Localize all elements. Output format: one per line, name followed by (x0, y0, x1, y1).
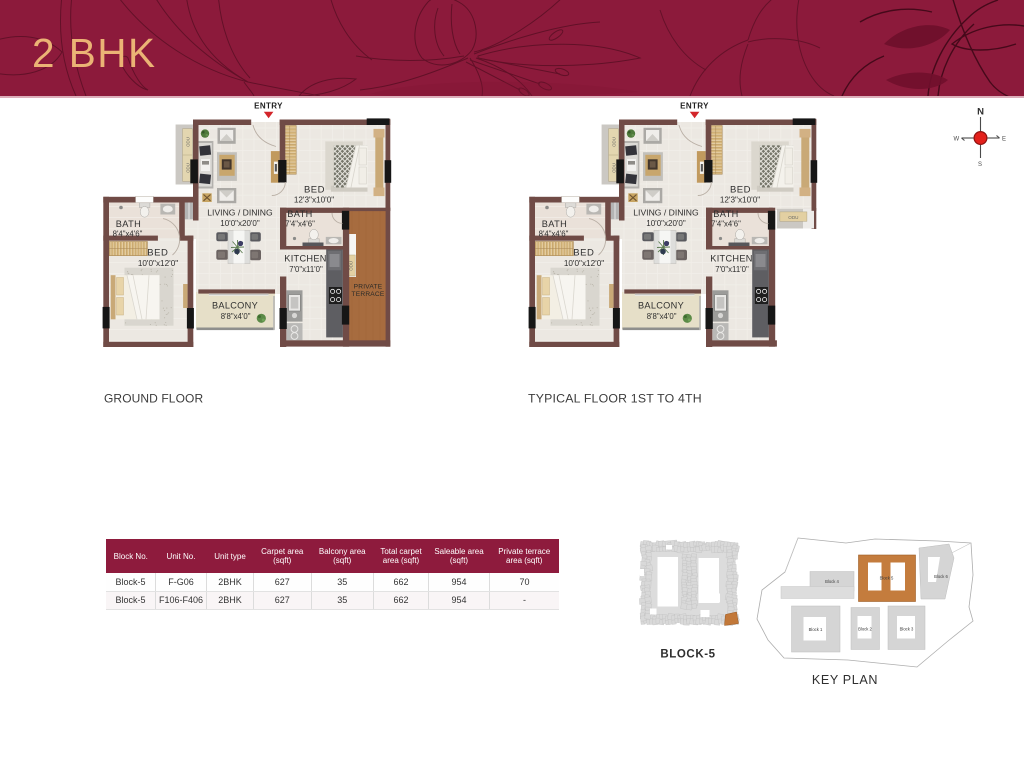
svg-text:BED: BED (573, 247, 594, 258)
svg-text:10'0"x12'0": 10'0"x12'0" (564, 259, 604, 268)
svg-text:S: S (978, 162, 982, 168)
svg-text:BED: BED (730, 184, 751, 195)
svg-text:LIVING / DINING: LIVING / DINING (207, 208, 273, 218)
svg-text:8'8"x4'0": 8'8"x4'0" (647, 312, 677, 321)
svg-text:ODU: ODU (186, 137, 191, 147)
svg-text:TERRACE: TERRACE (352, 291, 385, 298)
svg-text:E: E (1002, 137, 1006, 143)
svg-text:TYPICAL FLOOR 1ST TO 4TH: TYPICAL FLOOR 1ST TO 4TH (528, 392, 702, 406)
svg-text:KITCHEN: KITCHEN (710, 253, 752, 263)
svg-text:Block 2: Block 2 (858, 627, 872, 632)
svg-text:Block 4: Block 4 (825, 579, 839, 584)
svg-text:Block 5: Block 5 (880, 576, 894, 581)
svg-text:ODU: ODU (186, 163, 191, 173)
svg-text:BALCONY: BALCONY (638, 301, 684, 311)
svg-text:ENTRY: ENTRY (680, 102, 709, 111)
svg-text:BED: BED (147, 247, 168, 258)
svg-text:ODU: ODU (612, 137, 617, 147)
svg-text:KITCHEN: KITCHEN (284, 253, 326, 263)
svg-text:BATH: BATH (287, 209, 312, 219)
svg-text:GROUND FLOOR: GROUND FLOOR (104, 392, 203, 406)
svg-text:7'0"x11'0": 7'0"x11'0" (715, 265, 749, 274)
svg-text:8'4"x4'6": 8'4"x4'6" (113, 230, 143, 239)
svg-text:BALCONY: BALCONY (212, 301, 258, 311)
svg-text:8'8"x4'0": 8'8"x4'0" (221, 312, 251, 321)
svg-text:ODU: ODU (612, 163, 617, 173)
svg-text:12'3"x10'0": 12'3"x10'0" (294, 195, 334, 204)
svg-text:ENTRY: ENTRY (254, 102, 283, 111)
svg-text:7'0"x11'0": 7'0"x11'0" (289, 265, 323, 274)
svg-text:10'0"x20'0": 10'0"x20'0" (220, 219, 260, 228)
svg-text:7'4"x4'6": 7'4"x4'6" (285, 219, 315, 228)
svg-text:Block 6: Block 6 (934, 574, 948, 579)
svg-text:10'0"x12'0": 10'0"x12'0" (138, 259, 178, 268)
svg-text:BATH: BATH (542, 219, 567, 229)
svg-text:KEY PLAN: KEY PLAN (812, 673, 878, 687)
svg-text:ODU: ODU (788, 215, 798, 220)
svg-text:BATH: BATH (713, 209, 738, 219)
svg-text:2 BHK: 2 BHK (32, 30, 157, 76)
svg-text:BED: BED (304, 184, 325, 195)
svg-text:PRIVATE: PRIVATE (354, 283, 383, 290)
svg-text:Block 3: Block 3 (900, 627, 914, 632)
svg-text:10'0"x20'0": 10'0"x20'0" (646, 219, 686, 228)
svg-text:12'3"x10'0": 12'3"x10'0" (720, 195, 760, 204)
svg-text:7'4"x4'6": 7'4"x4'6" (711, 219, 741, 228)
svg-text:W: W (954, 137, 960, 143)
svg-text:Block 1: Block 1 (809, 627, 823, 632)
svg-text:N: N (977, 107, 984, 118)
svg-text:LIVING / DINING: LIVING / DINING (633, 208, 699, 218)
svg-text:BATH: BATH (116, 219, 141, 229)
svg-text:8'4"x4'6": 8'4"x4'6" (539, 230, 569, 239)
svg-text:BLOCK-5: BLOCK-5 (660, 649, 715, 661)
